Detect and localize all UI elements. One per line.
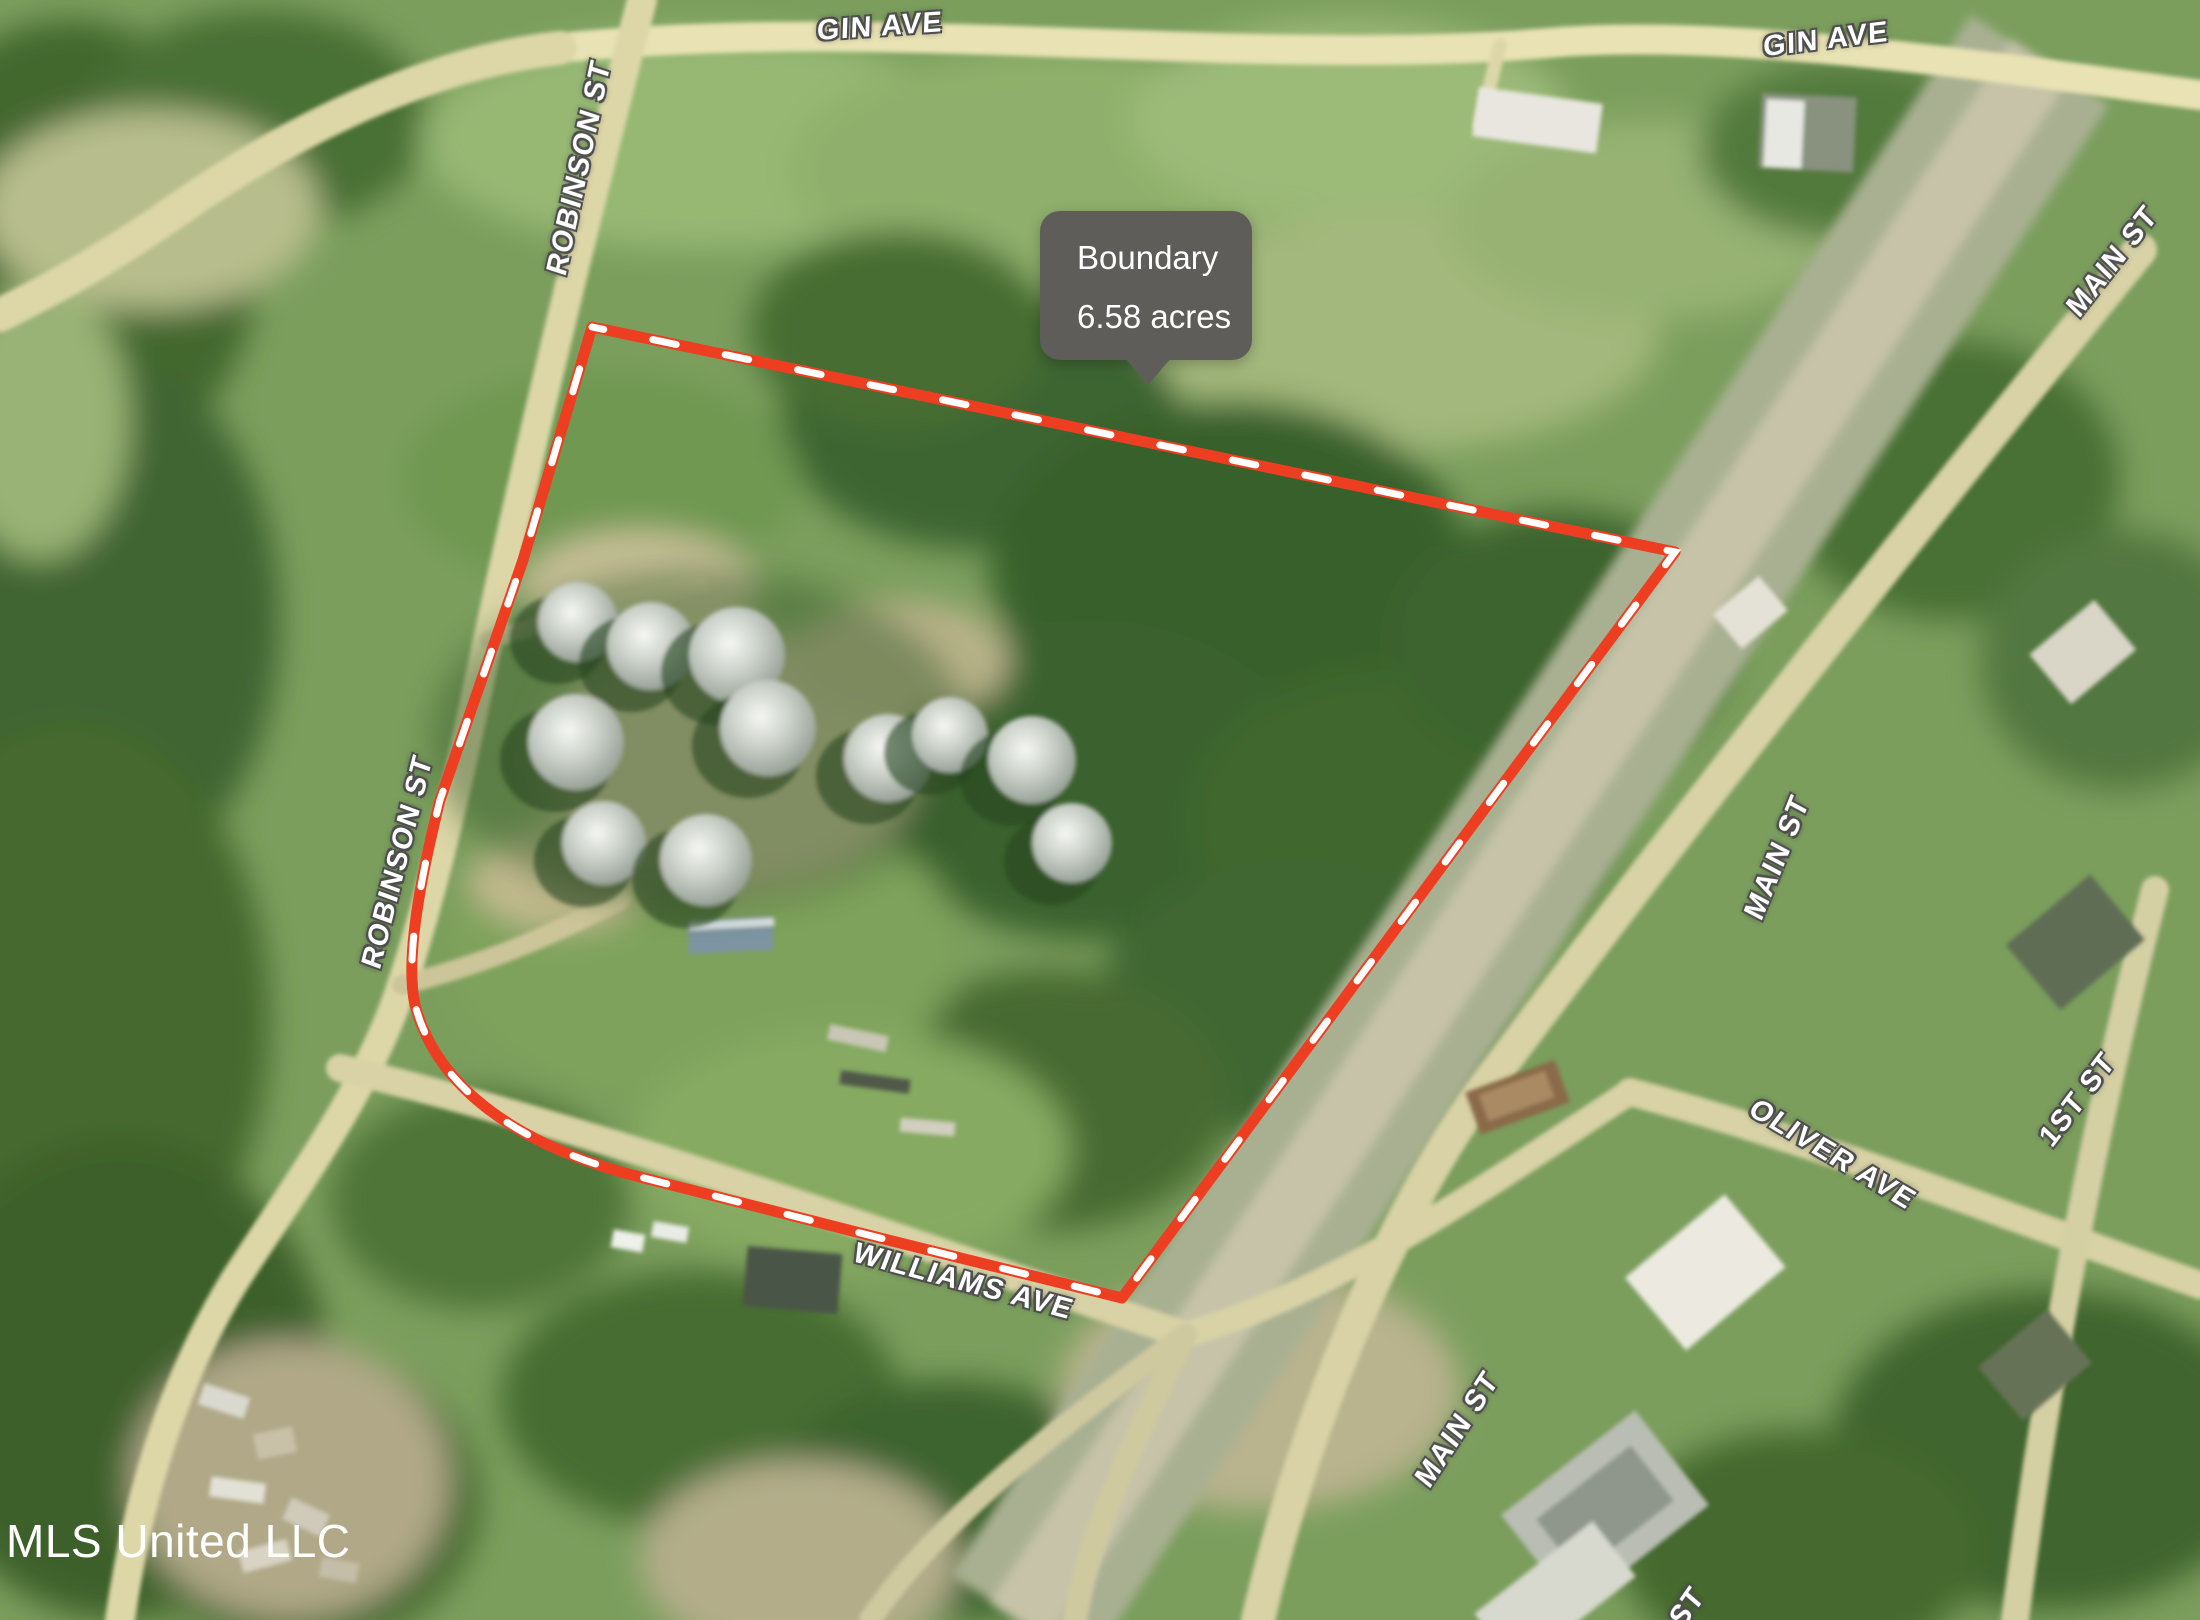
boundary-tooltip: Boundary 6.58 acres [1040,211,1252,360]
attribution-watermark: MLS United LLC [6,1514,351,1568]
map-viewport: GIN AVE GIN AVE ROBINSON ST ROBINSON ST … [0,0,2200,1620]
tooltip-pointer [1125,358,1171,385]
tooltip-area-value: 6.58 acres [1040,274,1252,333]
tooltip-title: Boundary [1040,211,1252,274]
